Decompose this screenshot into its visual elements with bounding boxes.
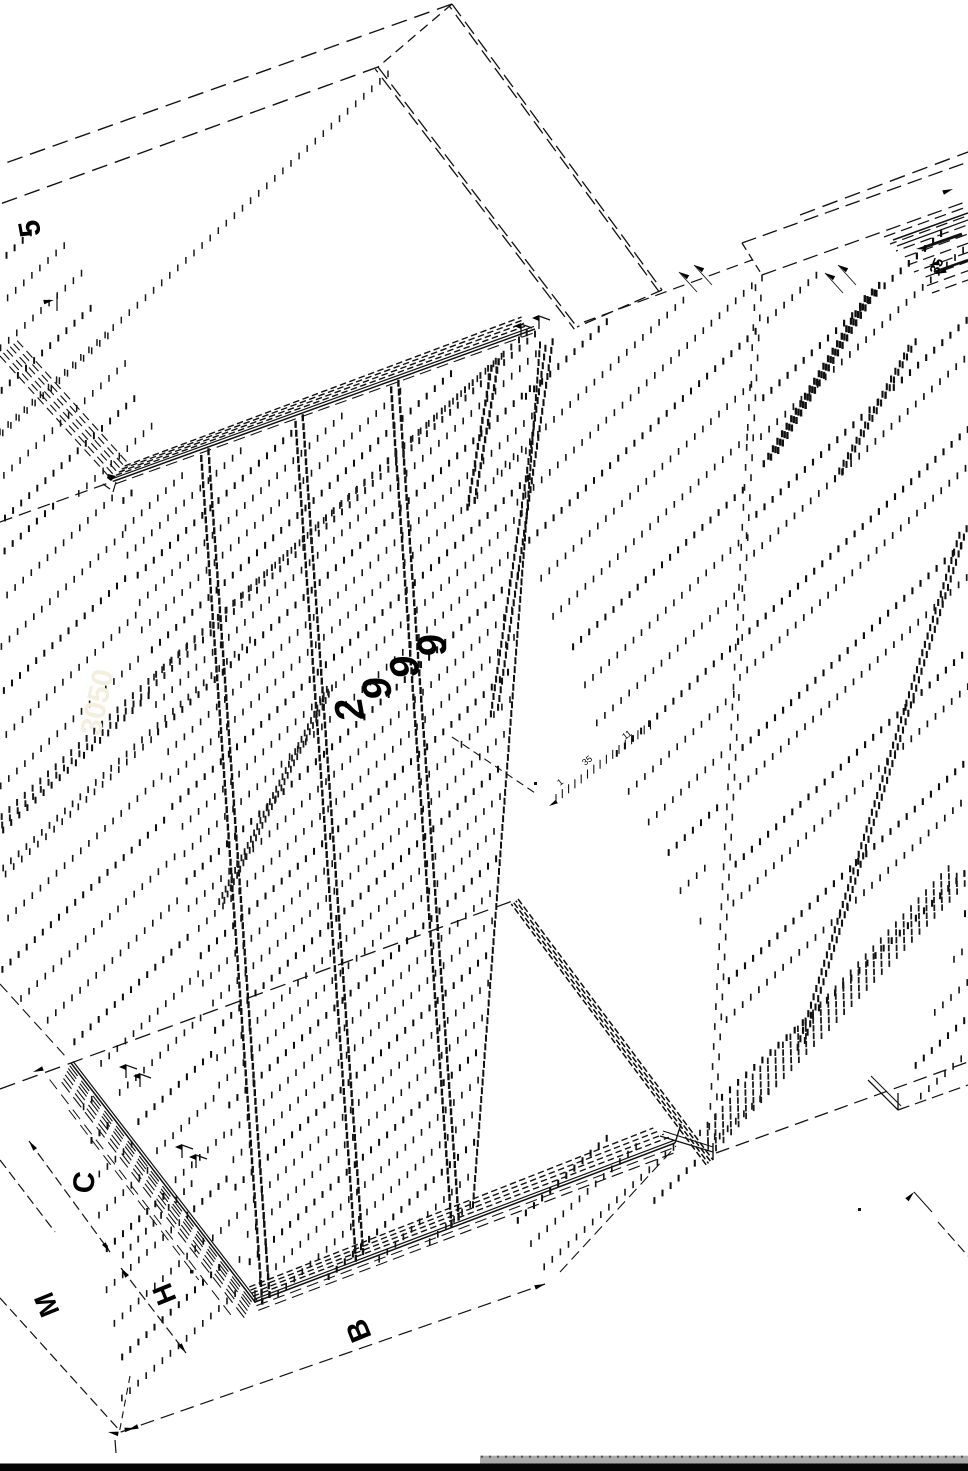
svg-text:C: C <box>67 1170 102 1194</box>
svg-text:9: 9 <box>407 633 456 656</box>
svg-text:9: 9 <box>352 676 401 699</box>
svg-text:9: 9 <box>380 655 429 678</box>
svg-text:2: 2 <box>325 698 374 721</box>
